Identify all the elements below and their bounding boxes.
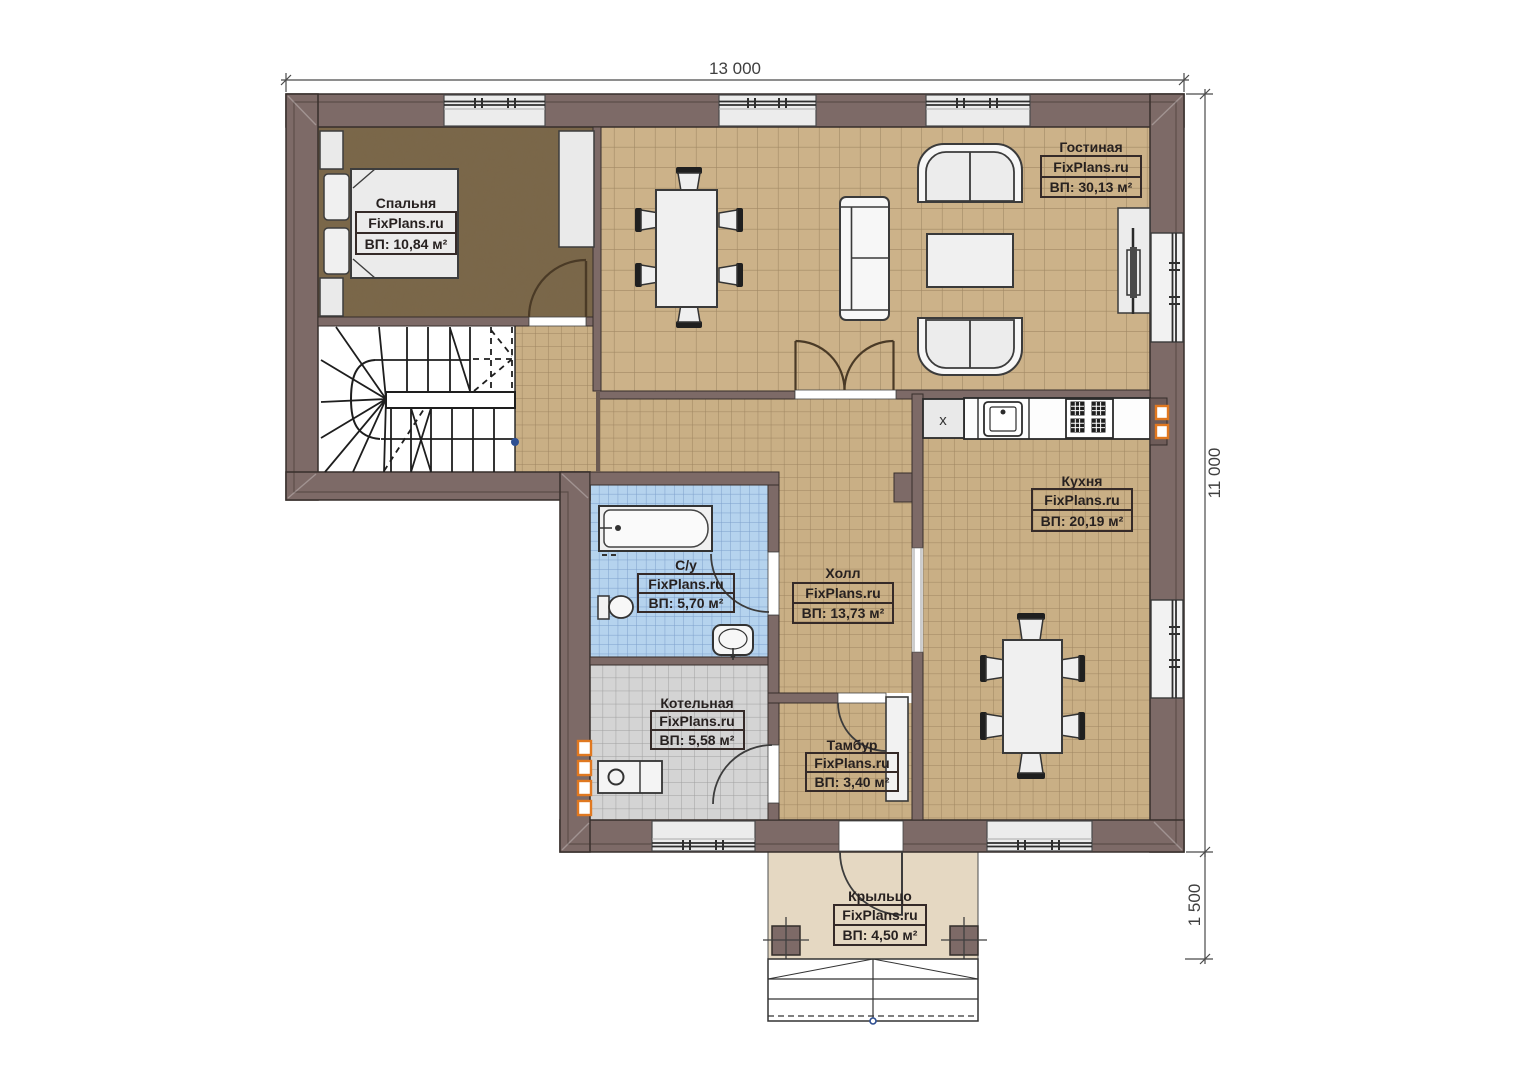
svg-text:FixPlans.ru: FixPlans.ru	[1053, 159, 1128, 175]
svg-text:Тамбур: Тамбур	[827, 737, 878, 753]
svg-text:ВП: 5,70 м²: ВП: 5,70 м²	[649, 595, 724, 611]
svg-text:С/у: С/у	[675, 557, 697, 573]
svg-text:FixPlans.ru: FixPlans.ru	[814, 755, 889, 771]
svg-text:ВП: 30,13 м²: ВП: 30,13 м²	[1050, 179, 1133, 195]
svg-text:Гостиная: Гостиная	[1059, 139, 1122, 155]
svg-text:FixPlans.ru: FixPlans.ru	[805, 585, 880, 601]
svg-text:Холл: Холл	[825, 565, 860, 581]
svg-text:Крыльцо: Крыльцо	[848, 888, 912, 904]
svg-text:ВП: 5,58 м²: ВП: 5,58 м²	[660, 732, 735, 748]
svg-text:FixPlans.ru: FixPlans.ru	[368, 215, 443, 231]
svg-text:FixPlans.ru: FixPlans.ru	[648, 576, 723, 592]
svg-text:FixPlans.ru: FixPlans.ru	[1044, 492, 1119, 508]
svg-text:ВП: 10,84 м²: ВП: 10,84 м²	[365, 236, 448, 252]
svg-text:x: x	[939, 412, 947, 429]
svg-text:13 000: 13 000	[709, 59, 761, 78]
svg-text:ВП: 4,50 м²: ВП: 4,50 м²	[843, 927, 918, 943]
svg-text:Кухня: Кухня	[1062, 473, 1103, 489]
svg-text:Котельная: Котельная	[660, 695, 733, 711]
svg-text:FixPlans.ru: FixPlans.ru	[659, 713, 734, 729]
svg-text:1 500: 1 500	[1185, 884, 1204, 927]
svg-text:FixPlans.ru: FixPlans.ru	[842, 907, 917, 923]
svg-text:ВП: 3,40 м²: ВП: 3,40 м²	[815, 774, 890, 790]
svg-text:ВП: 20,19 м²: ВП: 20,19 м²	[1041, 513, 1124, 529]
svg-text:Спальня: Спальня	[376, 195, 436, 211]
svg-text:11 000: 11 000	[1205, 448, 1224, 499]
svg-text:ВП: 13,73 м²: ВП: 13,73 м²	[802, 605, 885, 621]
